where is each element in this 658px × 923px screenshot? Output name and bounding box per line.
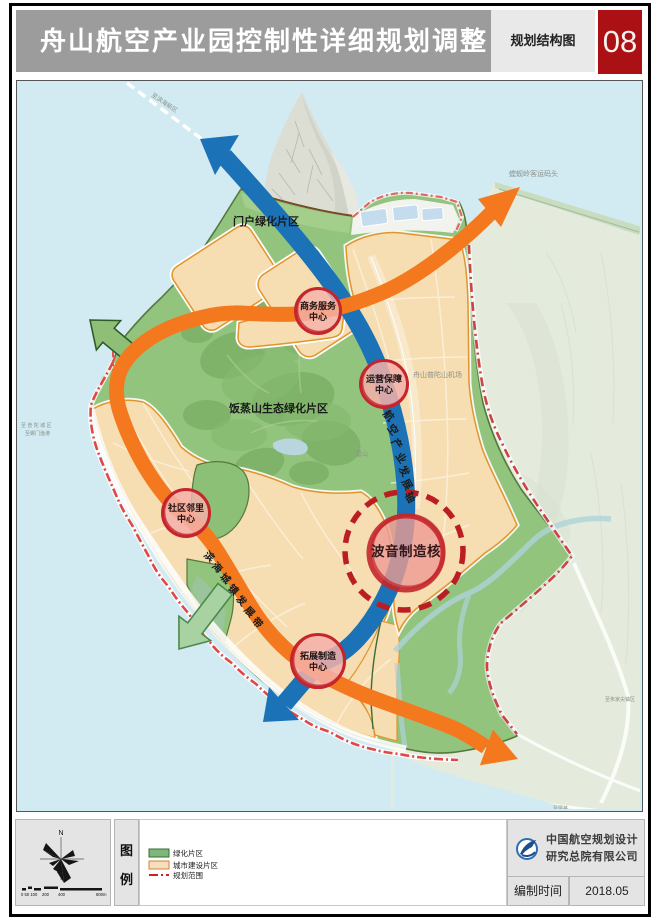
svg-text:螳蚬岭客运码头: 螳蚬岭客运码头 [509,169,558,178]
svg-text:商务服务: 商务服务 [300,300,337,311]
svg-text:研究总院有限公司: 研究总院有限公司 [546,849,638,863]
svg-text:至 普 陀 城 区: 至 普 陀 城 区 [21,422,52,429]
svg-text:中国航空规划设计: 中国航空规划设计 [546,832,638,846]
svg-text:舟山普陀山机场: 舟山普陀山机场 [413,370,462,379]
svg-text:雷山: 雷山 [356,450,368,458]
svg-text:拓展制造: 拓展制造 [300,650,337,661]
svg-text:至展茅: 至展茅 [553,805,568,809]
svg-text:社区邻里: 社区邻里 [167,502,204,513]
svg-text:中心: 中心 [375,384,393,395]
svg-text:门户绿化片区: 门户绿化片区 [233,214,299,228]
svg-text:绿化片区: 绿化片区 [173,848,203,858]
svg-text:规划范围: 规划范围 [173,870,203,880]
svg-text:中心: 中心 [177,513,195,524]
svg-text:至螺门渔港: 至螺门渔港 [25,430,50,437]
svg-text:波音制造核: 波音制造核 [371,543,441,559]
svg-text:800m: 800m [96,892,107,897]
svg-text:饭蒸山生态绿化片区: 饭蒸山生态绿化片区 [228,401,328,415]
svg-text:至朱家尖镇区: 至朱家尖镇区 [605,696,635,703]
svg-text:N: N [58,830,63,837]
svg-text:0 50 100: 0 50 100 [21,892,38,897]
svg-text:400: 400 [58,892,66,897]
svg-text:中心: 中心 [309,311,327,322]
svg-text:中心: 中心 [309,661,327,672]
svg-text:200: 200 [42,892,50,897]
svg-text:城市建设片区: 城市建设片区 [173,860,218,870]
svg-text:运营保障: 运营保障 [366,373,402,384]
